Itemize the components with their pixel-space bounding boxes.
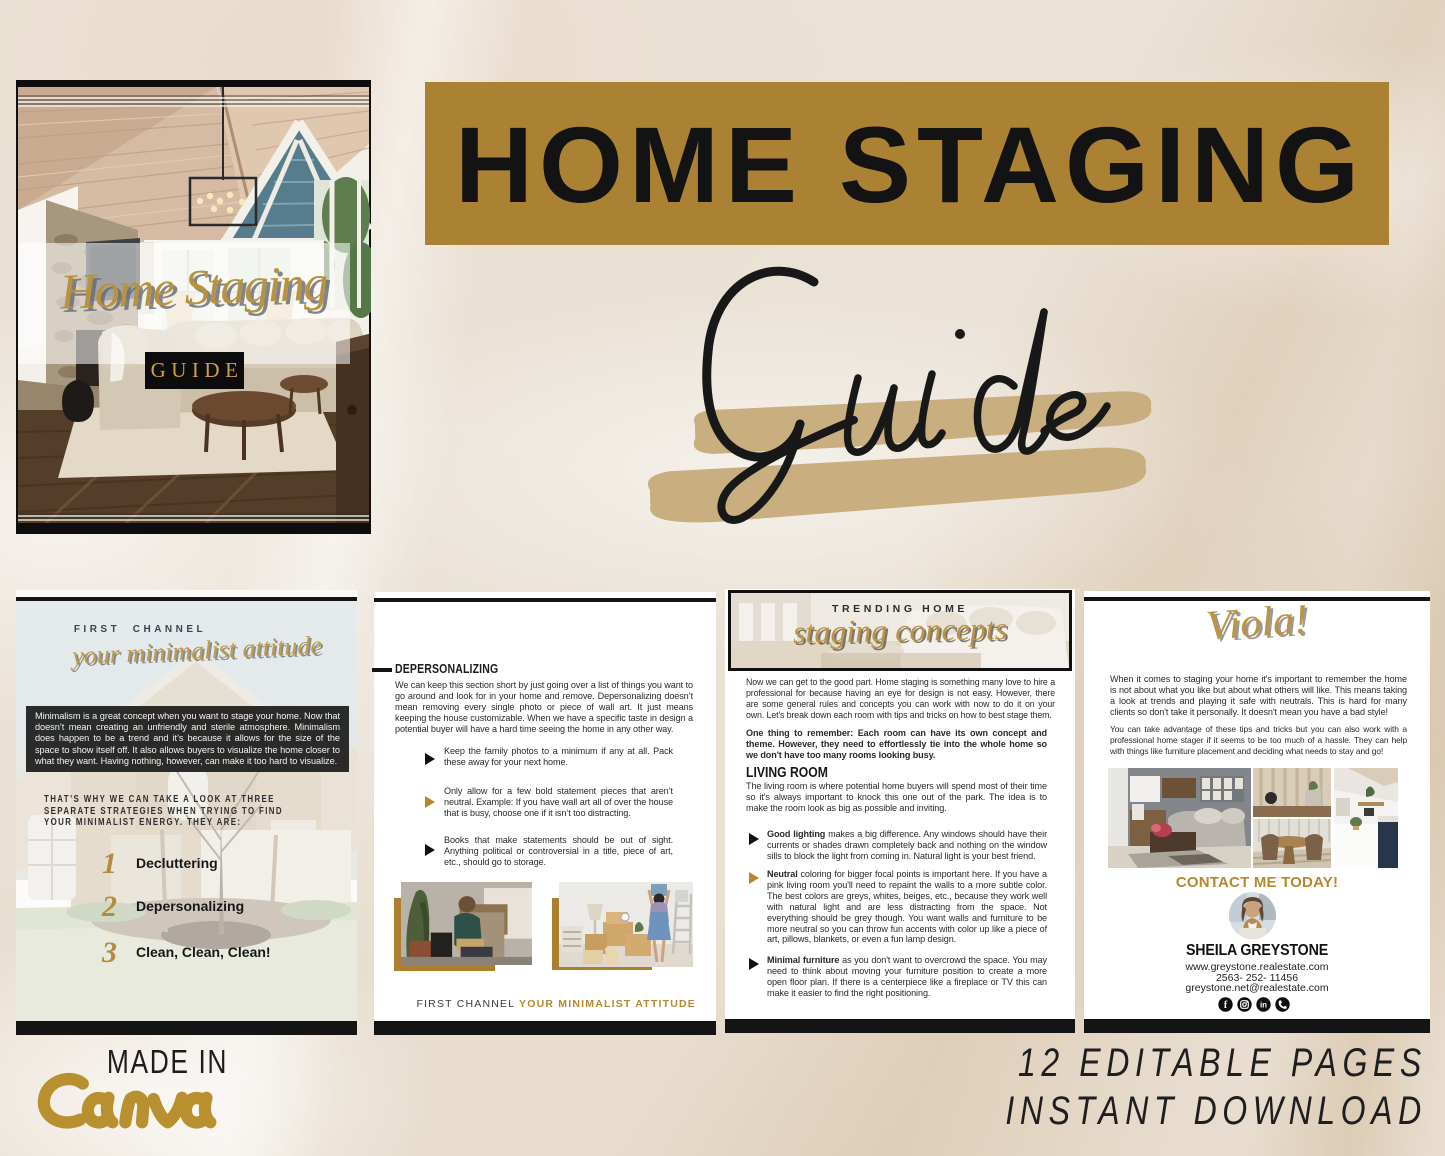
svg-text:GUIDE: GUIDE (151, 358, 244, 382)
svg-text:in: in (1260, 1001, 1267, 1010)
